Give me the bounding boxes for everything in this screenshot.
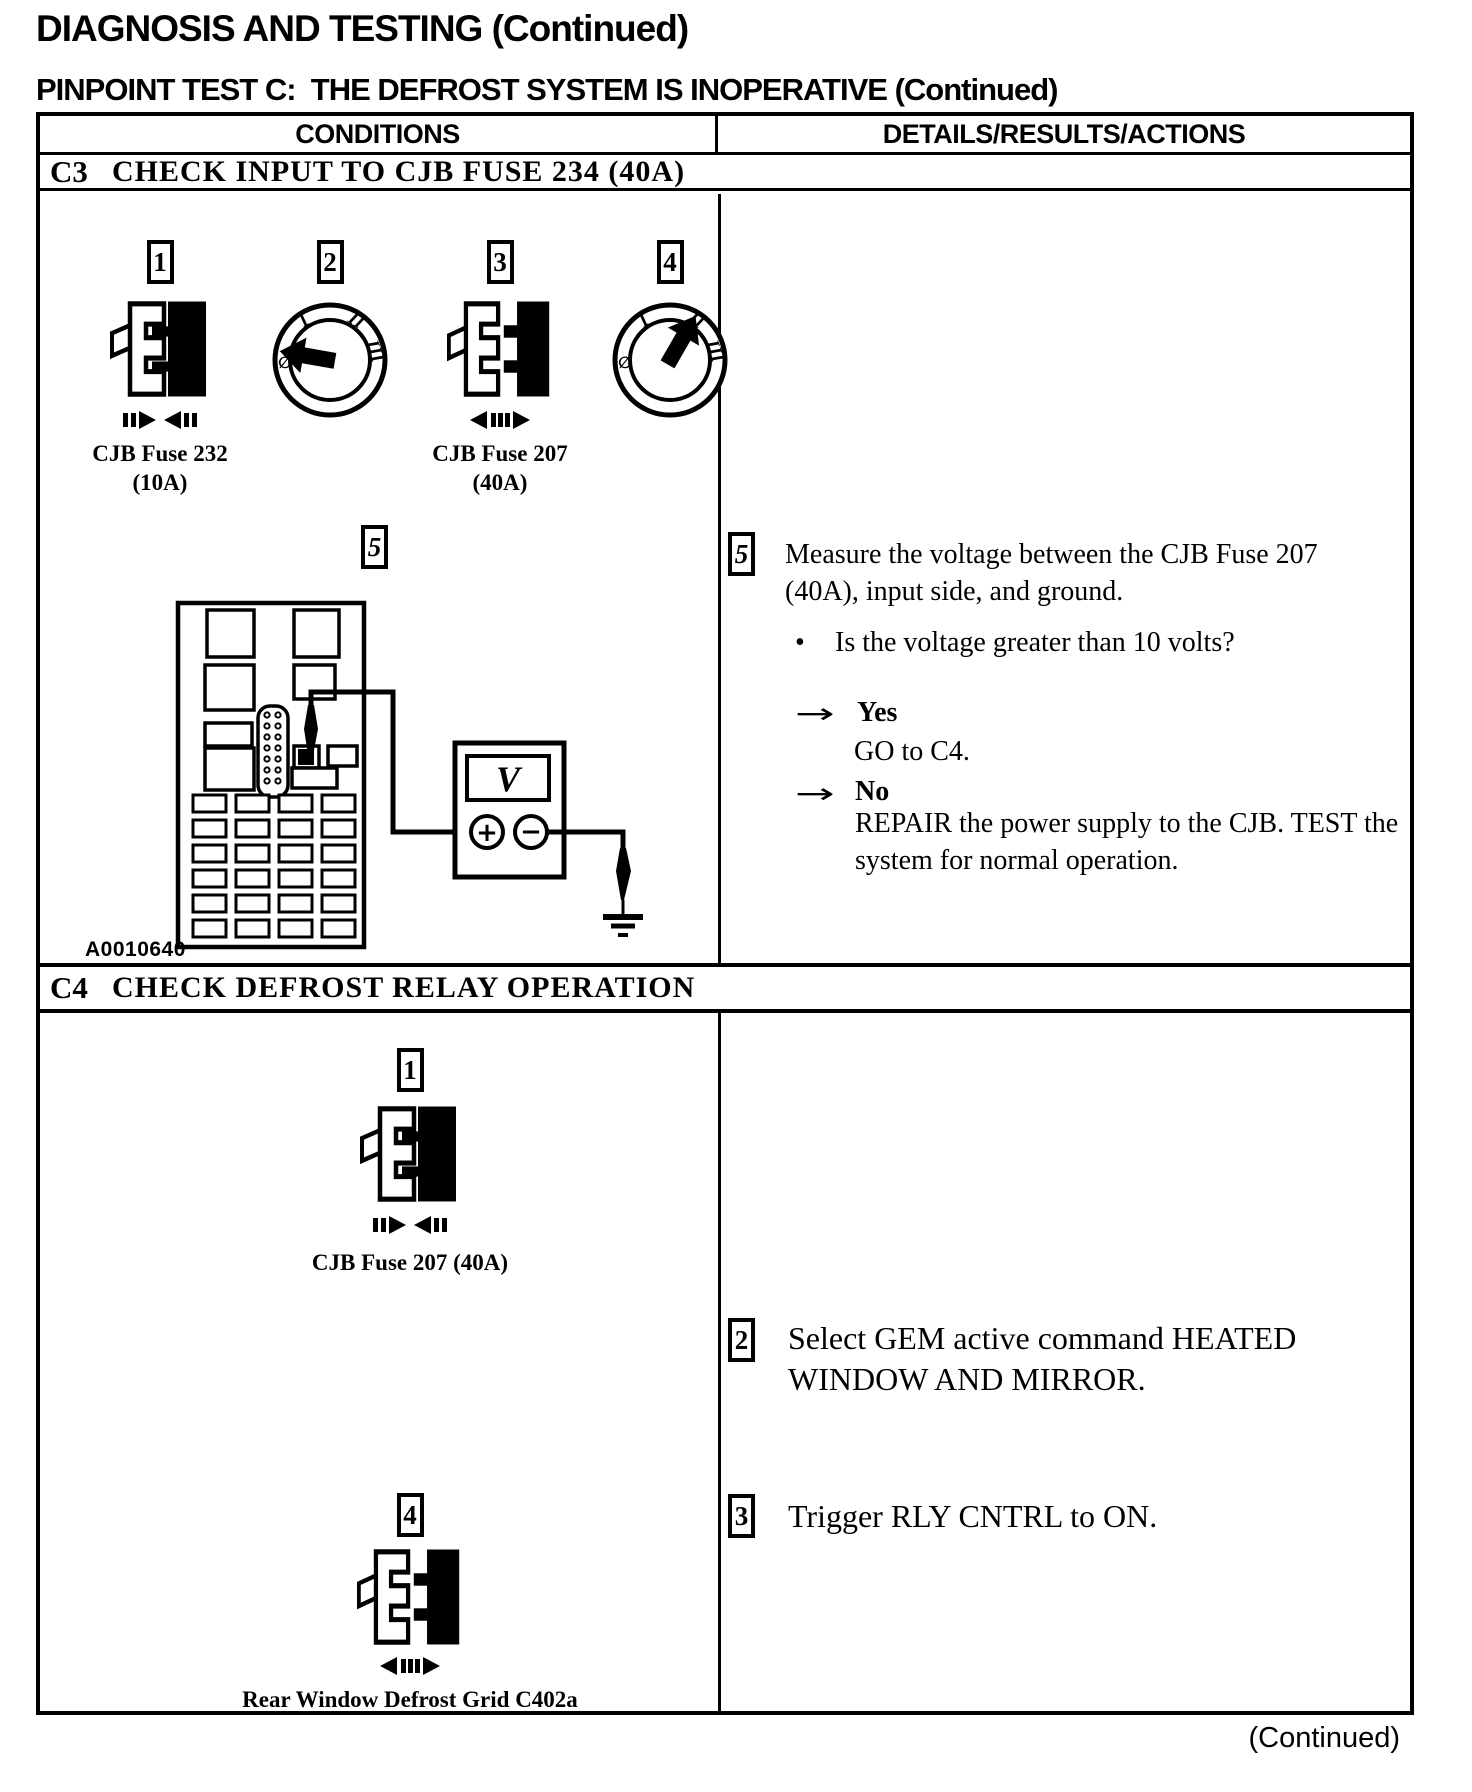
result-arrow-icon: → — [795, 697, 835, 730]
fuse-connector-icon — [110, 297, 210, 401]
c3-details-cell: 5 Measure the voltage between the CJB Fu… — [721, 194, 1410, 963]
step-number: 1 — [403, 1055, 417, 1086]
step-number-badge: 5 — [361, 525, 388, 569]
disconnect-arrows-icon — [360, 1655, 460, 1677]
c3-step-id: C3 — [50, 154, 112, 190]
ignition-switch-run-icon — [607, 296, 733, 422]
c4-section-bar: C4 CHECK DEFROST RELAY OPERATION — [40, 963, 1410, 1013]
result-arrow-icon: → — [795, 777, 835, 810]
c4-step-title: CHECK DEFROST RELAY OPERATION — [112, 971, 695, 1005]
pinpoint-test-table: CONDITIONS DETAILS/RESULTS/ACTIONS C3 CH… — [36, 112, 1414, 1715]
step-number: 2 — [323, 247, 337, 278]
c4-conditions-cell: 1 CJB Fuse 207 (40A) 4 Rear Window Defro… — [40, 1013, 718, 1711]
step-number: 5 — [735, 539, 749, 570]
table-header-row: CONDITIONS DETAILS/RESULTS/ACTIONS — [40, 116, 1410, 155]
disconnect-arrows-icon — [450, 409, 550, 431]
step-number-badge: 2 — [728, 1318, 755, 1362]
fuse-disconnected-icon — [447, 297, 553, 401]
figure-id: A0010640 — [85, 938, 186, 962]
voltmeter-display-label: V — [496, 759, 523, 799]
step-number: 4 — [403, 1500, 417, 1531]
step-number: 5 — [368, 532, 382, 563]
c4-step-id: C4 — [50, 970, 112, 1006]
step-number-badge: 3 — [728, 1494, 755, 1538]
c4-step4-icon-group: 4 Rear Window Defrost Grid C402a — [220, 1493, 600, 1714]
c4-fuse-207-label: CJB Fuse 207 (40A) — [312, 1248, 508, 1277]
fuse-232-rating: (10A) — [92, 468, 227, 497]
fuse-207-name: CJB Fuse 207 — [432, 439, 567, 468]
step-number: 3 — [493, 247, 507, 278]
connect-arrows-icon — [360, 1214, 460, 1236]
bullet-marker: • — [795, 624, 805, 661]
step-number-badge: 1 — [147, 240, 174, 284]
service-manual-page: DIAGNOSIS AND TESTING (Continued) PINPOI… — [0, 0, 1472, 1792]
fuse-connector-icon — [360, 1102, 460, 1206]
step-number-badge: 4 — [397, 1493, 424, 1537]
c3-step-title: CHECK INPUT TO CJB FUSE 234 (40A) — [112, 155, 685, 189]
connect-arrows-icon — [110, 409, 210, 431]
connector-disconnected-icon — [357, 1545, 463, 1649]
step-number-badge: 4 — [657, 240, 684, 284]
fuse-207-rating: (40A) — [432, 468, 567, 497]
step-number-badge: 5 — [728, 532, 755, 576]
positive-terminal-label: + — [476, 818, 498, 848]
c4-details-cell: 2 Select GEM active command HEATED WINDO… — [721, 1013, 1410, 1711]
c3-yes-label: Yes — [857, 694, 897, 731]
step-number: 3 — [735, 1501, 749, 1532]
c4-step1-icon-group: 1 CJB Fuse 207 (40A) — [220, 1048, 600, 1277]
fuse-232-name: CJB Fuse 232 — [92, 439, 227, 468]
c4-action2-text: Select GEM active command HEATED WINDOW … — [788, 1318, 1428, 1400]
fuse-232-label: CJB Fuse 232 (10A) — [92, 439, 227, 497]
c3-step2-icon-group: 2 — [255, 240, 405, 422]
voltmeter-icon: V + − — [455, 743, 564, 877]
c3-action5-text: Measure the voltage between the CJB Fuse… — [785, 536, 1385, 610]
c3-no-action: REPAIR the power supply to the CJB. TEST… — [855, 805, 1430, 879]
page-title: DIAGNOSIS AND TESTING (Continued) — [36, 8, 688, 50]
header-conditions: CONDITIONS — [40, 116, 718, 152]
ignition-switch-off-icon — [267, 296, 393, 422]
c3-step3-icon-group: 3 CJB Fuse 207 (40A) — [425, 240, 575, 497]
c4-action3-text: Trigger RLY CNTRL to ON. — [788, 1496, 1428, 1537]
c3-section-bar: C3 CHECK INPUT TO CJB FUSE 234 (40A) — [40, 155, 1410, 191]
continued-note: (Continued) — [1248, 1722, 1400, 1755]
ground-icon — [603, 848, 643, 935]
c3-conditions-cell: 1 CJB Fuse 232 (10A) 2 3 — [40, 194, 718, 963]
step-number-badge: 3 — [487, 240, 514, 284]
fusebox-voltmeter-diagram: V + − — [40, 514, 716, 963]
c4-defrost-grid-label: Rear Window Defrost Grid C402a — [242, 1685, 578, 1714]
step-number-badge: 1 — [397, 1048, 424, 1092]
step-number: 1 — [153, 247, 167, 278]
step-number: 2 — [735, 1325, 749, 1356]
step-number-badge: 2 — [317, 240, 344, 284]
c3-question-text: Is the voltage greater than 10 volts? — [835, 624, 1395, 661]
header-details: DETAILS/RESULTS/ACTIONS — [718, 116, 1410, 152]
c3-step1-icon-group: 1 CJB Fuse 232 (10A) — [85, 240, 235, 497]
fuse-207-label: CJB Fuse 207 (40A) — [432, 439, 567, 497]
step-number: 4 — [663, 247, 677, 278]
page-subtitle: PINPOINT TEST C: THE DEFROST SYSTEM IS I… — [36, 72, 1057, 108]
c3-yes-action: GO to C4. — [854, 733, 1414, 770]
negative-terminal-label: − — [520, 817, 542, 847]
